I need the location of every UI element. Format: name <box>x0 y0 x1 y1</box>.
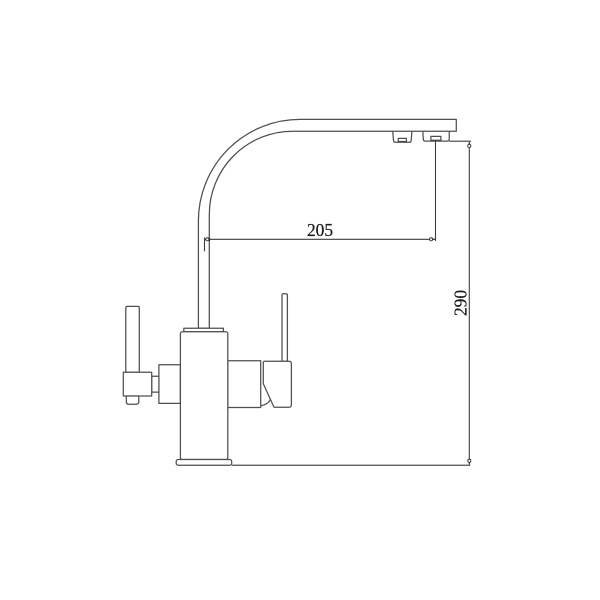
svg-text:205: 205 <box>307 220 333 240</box>
svg-text:290: 290 <box>450 290 470 316</box>
